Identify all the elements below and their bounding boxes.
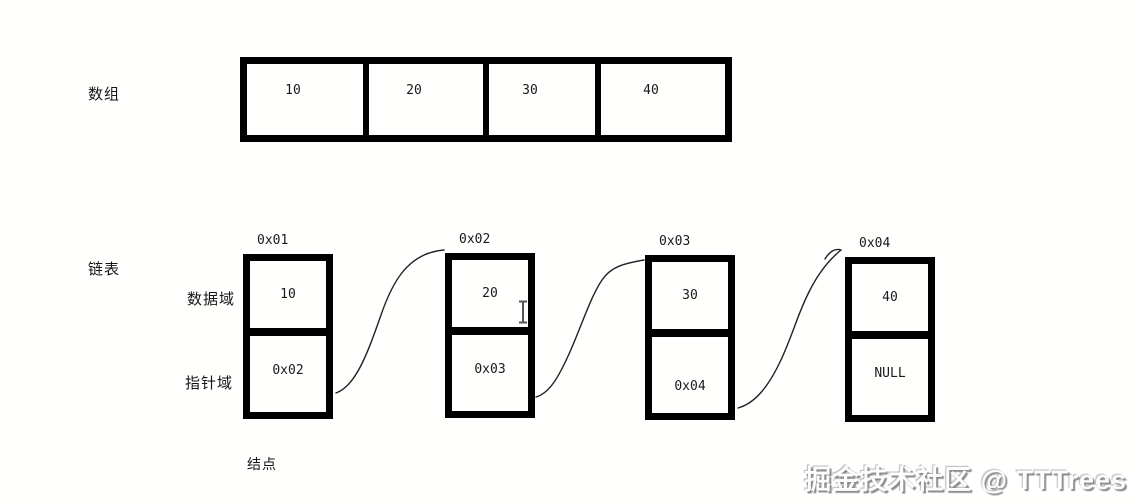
array-cell-value: 10 [285,83,301,98]
curve-node2-to-node3 [536,260,644,397]
list-node-4: 0x04 40 NULL [845,257,935,422]
array-section-label: 数组 [88,83,120,104]
list-node-1: 0x01 10 0x02 [243,254,333,419]
array-cell-value: 40 [643,83,659,98]
node-data-cell: 30 [652,262,728,337]
curve-end-hook [825,249,841,259]
node-data-value: 30 [682,288,698,303]
array-cell: 30 [489,64,595,135]
node-address: 0x01 [257,233,288,248]
node-data-value: 10 [280,287,296,302]
node-pointer-cell: NULL [852,339,928,407]
node-pointer-value: 0x04 [674,379,705,394]
node-pointer-value: NULL [874,366,905,381]
array-cell: 10 [247,64,363,135]
array-cell-value: 30 [522,83,538,98]
pointer-field-label: 指针域 [185,372,233,393]
node-pointer-cell: 0x02 [250,336,326,404]
data-field-label: 数据域 [187,288,235,309]
node-data-cell: 40 [852,264,928,339]
node-data-value: 20 [482,286,498,301]
node-pointer-cell: 0x04 [652,337,728,405]
text-ibeam-cursor [518,300,528,324]
array-cell: 40 [601,64,725,135]
linked-list-section-label: 链表 [88,258,120,279]
node-address: 0x04 [859,236,890,251]
list-node-3: 0x03 30 0x04 [645,255,735,420]
node-pointer-cell: 0x03 [452,335,528,403]
node-caption-label: 结点 [247,454,277,474]
curve-node3-to-node4 [738,250,841,408]
node-address: 0x02 [459,232,490,247]
array-cell-value: 20 [406,83,422,98]
node-data-cell: 10 [250,261,326,336]
node-pointer-value: 0x02 [272,363,303,378]
diagram-canvas: 数组 链表 数据域 指针域 结点 10 20 30 40 0x01 10 [0,0,1137,504]
watermark: 掘金技术社区 @ TTTrees [804,458,1127,497]
curve-node1-to-node2 [336,250,444,393]
node-data-cell: 20 [452,260,528,335]
array-cell: 20 [369,64,483,135]
node-data-value: 40 [882,290,898,305]
array-box: 10 20 30 40 [240,57,732,142]
node-pointer-value: 0x03 [474,362,505,377]
list-node-2: 0x02 20 0x03 [445,253,535,418]
node-address: 0x03 [659,234,690,249]
